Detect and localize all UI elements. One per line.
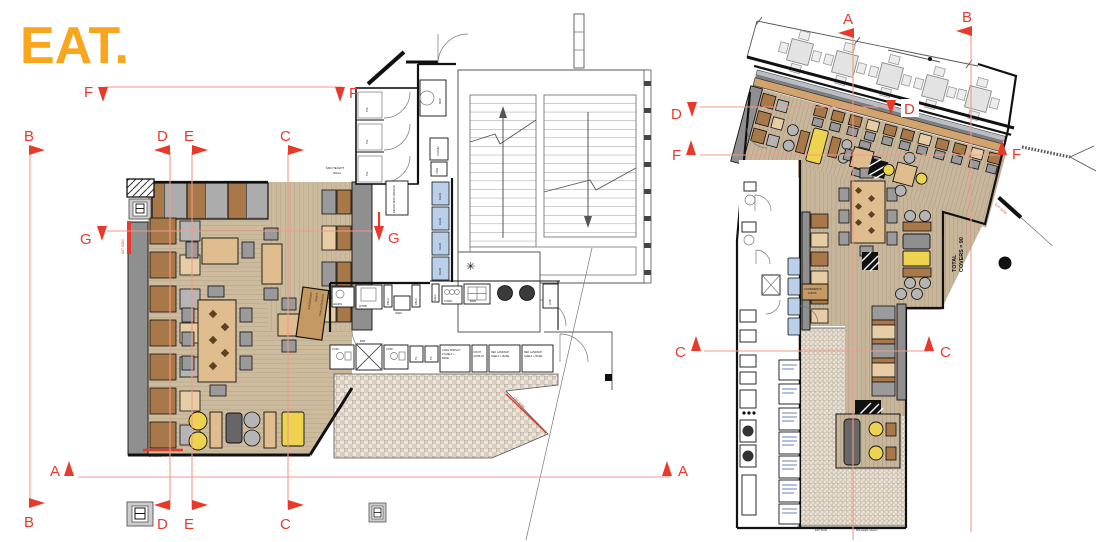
marker-D: D (671, 106, 682, 123)
svg-text:3 SHELF +: 3 SHELF + (442, 352, 455, 356)
marker-B: B (24, 514, 34, 531)
svg-text:REF LANDSCP: REF LANDSCP (524, 350, 542, 354)
ref-landscape (489, 345, 520, 372)
marker-F: F (84, 84, 93, 101)
fblo-label: FBLO (414, 298, 418, 305)
marker-C: C (940, 344, 951, 361)
door-leader (1022, 147, 1070, 157)
sink-label: SINK (435, 168, 439, 174)
wtrb-label: WTRB (359, 304, 367, 308)
rack-label: RACK (438, 243, 442, 250)
svg-text:CAKE DISPLAY: CAKE DISPLAY (442, 348, 461, 352)
till-label: TIL (414, 356, 418, 360)
svg-text:EAT SIGN: EAT SIGN (121, 239, 125, 254)
marker-A: A (50, 463, 60, 480)
svg-text:SHELF + BASE: SHELF + BASE (524, 354, 543, 358)
coffee-machine (520, 286, 535, 301)
coshh-label: COSHH (436, 147, 440, 156)
right-plan: CONDIMENTS & BINS (729, 17, 1096, 532)
svg-text:DISPLAY: DISPLAY (474, 354, 485, 358)
svg-text:CONDIMENTS: CONDIMENTS (804, 287, 822, 291)
svg-text:WALL: WALL (333, 171, 342, 175)
marker-G: G (388, 230, 400, 247)
fruit-display (472, 345, 487, 372)
aob-label: AOB (548, 299, 552, 305)
svg-text:SHELF + BASE: SHELF + BASE (491, 354, 510, 358)
marker-F: F (1012, 146, 1021, 163)
left-plan: TF2 TF1 TF1 MOP COSHH SINK BENCH WITH MI… (121, 14, 651, 540)
column-hatched (862, 252, 879, 271)
marker-A: A (678, 463, 688, 480)
wc-label: TF1 (365, 171, 369, 176)
column-dot (999, 257, 1012, 270)
svg-text:BASE: BASE (442, 356, 449, 360)
kitchen-store: MOP COSHH SINK (418, 64, 456, 184)
coff-label: COFF (332, 347, 339, 351)
bain-label: BAIN (470, 299, 476, 303)
wc-label: TF2 (365, 107, 369, 112)
column-symbol (129, 199, 151, 219)
eat-logo: EAT. (20, 17, 129, 75)
mid-height-wall-label: MID HEIGHT (326, 166, 344, 170)
eat-sign-bottom: EAT SIGN (815, 528, 827, 532)
glazed-screen-label: MID HEIGHT GLAZED SCREEN (941, 234, 945, 272)
marker-D: D (904, 101, 915, 118)
total-covers-label: TOTAL (952, 254, 958, 272)
eat-sign-leader: EAT SIGN (993, 196, 1054, 252)
marker-E: E (184, 516, 194, 533)
marker-A: A (843, 11, 853, 28)
hands-label: HANDS (333, 302, 342, 306)
column-symbol (369, 503, 386, 522)
svg-text:EAT SIGN: EAT SIGN (149, 454, 161, 458)
bfr-label: BFR (360, 339, 365, 343)
rack-shelving: RACK RACK RACK RACK (432, 178, 452, 282)
icem-label: ICEM (395, 311, 401, 315)
rack-label: RACK (438, 268, 442, 275)
svg-text:REF LANDSCP: REF LANDSCP (491, 350, 509, 354)
rack-label: RACK (438, 218, 442, 225)
marker-D: D (157, 128, 168, 145)
marker-D: D (157, 516, 168, 533)
tiled-floor (334, 374, 558, 458)
marker-B: B (962, 9, 972, 26)
till-label: TIL (429, 356, 433, 360)
rack-label: RACK (438, 193, 442, 200)
marker-F: F (349, 85, 358, 102)
marker-C: C (675, 344, 686, 361)
marker-E: E (184, 128, 194, 145)
column-symbol (127, 502, 153, 526)
marker-G: G (80, 231, 92, 248)
towd-label: TOWD (444, 299, 452, 303)
wc-block: TF2 TF1 TF1 (356, 88, 418, 184)
elec-label: ELEC (433, 294, 437, 301)
floorplan-sheet: EAT. (0, 0, 1100, 542)
svg-text:FRUIT: FRUIT (474, 350, 482, 354)
marker-B: B (24, 128, 34, 145)
wc-label: TF1 (365, 139, 369, 144)
marker-C: C (280, 516, 291, 533)
ref-landscape (522, 345, 553, 372)
banquette-top (152, 183, 268, 219)
bench-mirror-box (386, 181, 408, 215)
marker-F: F (672, 147, 681, 164)
svg-text:& BINS: & BINS (808, 291, 817, 295)
coffee-machine (498, 286, 513, 301)
mid-height-screen-label: Mid Height Screen (856, 528, 878, 532)
mop-label: MOP (438, 98, 442, 104)
coff-label: COFF (386, 347, 393, 351)
marker-C: C (280, 128, 291, 145)
display-counters (779, 360, 800, 524)
light-symbol: ✳ (466, 261, 475, 273)
svg-text:COVERS = 90: COVERS = 90 (959, 237, 965, 272)
hatched-riser (127, 179, 154, 197)
fblo-label: FBLO (386, 298, 390, 305)
bench-mirror-label: BENCH WITH MIRROR (392, 185, 396, 213)
